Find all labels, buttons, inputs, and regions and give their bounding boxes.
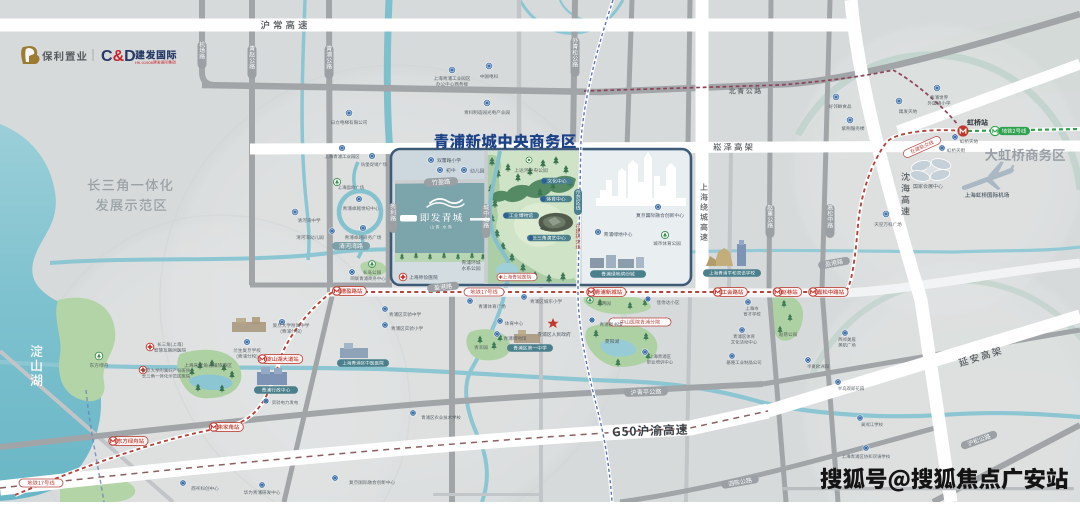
svg-text:C&D: C&D bbox=[101, 48, 136, 65]
svg-text:HK.01908: HK.01908 bbox=[135, 60, 154, 65]
